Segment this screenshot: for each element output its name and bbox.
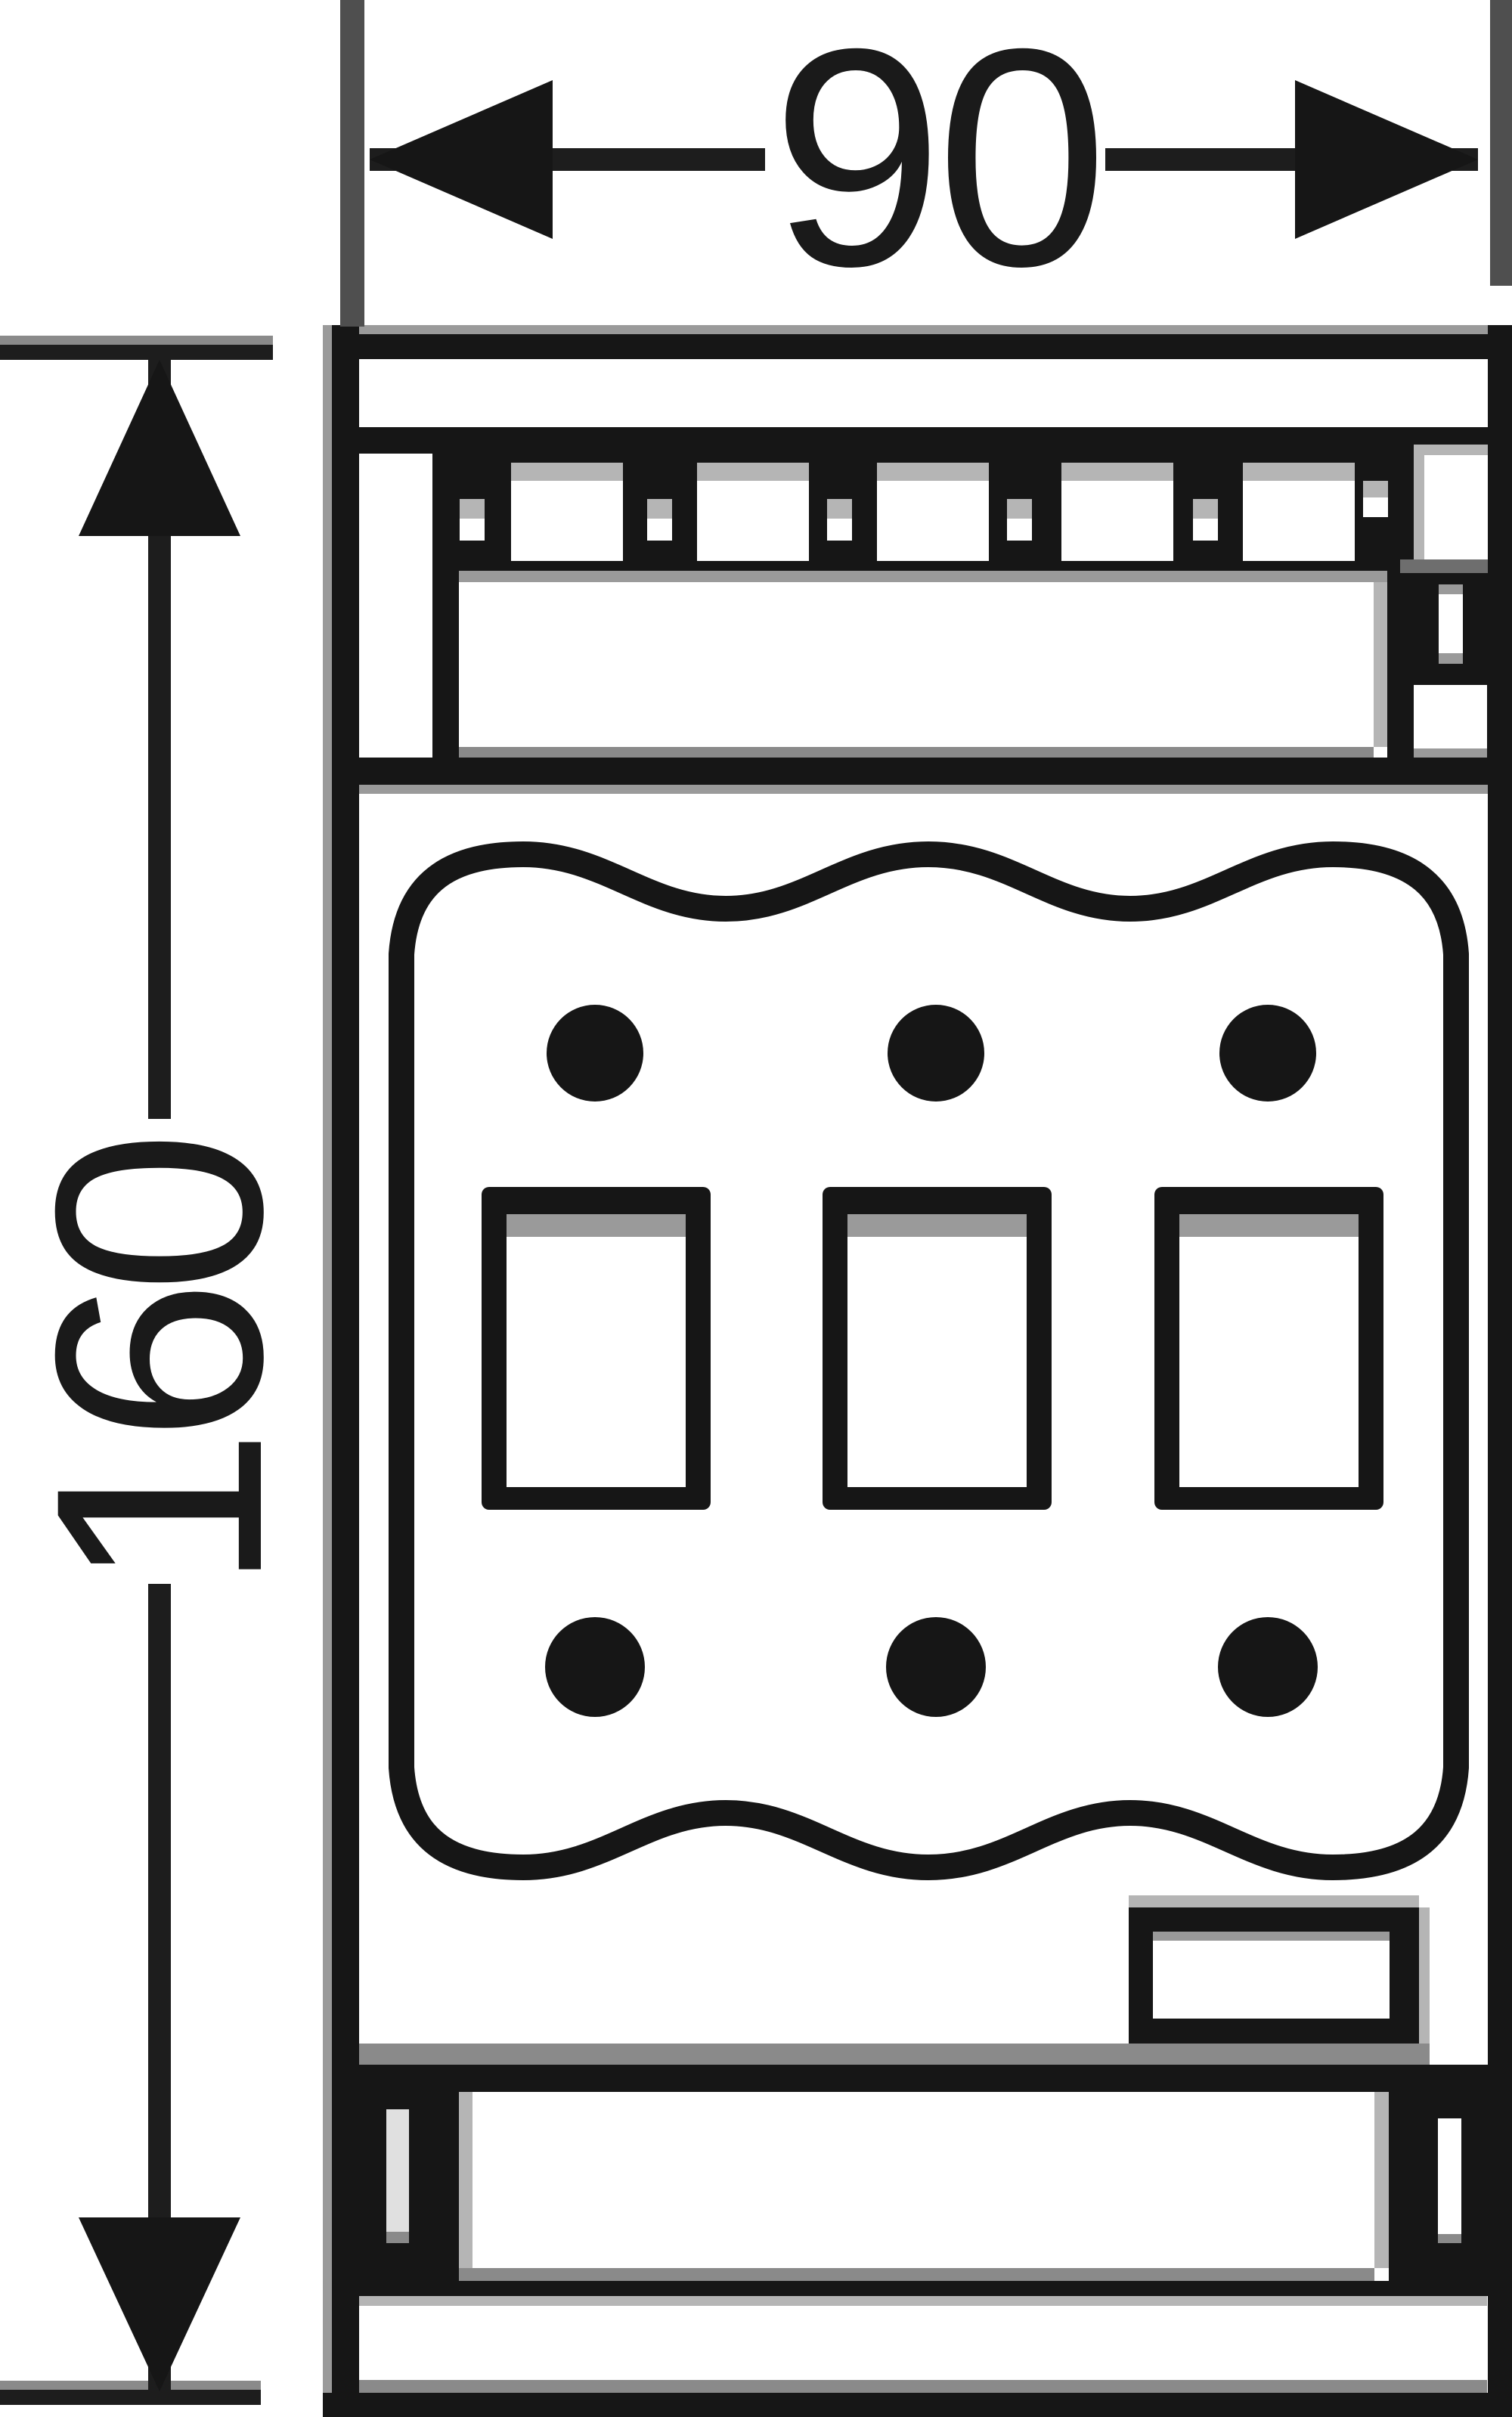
nameplate-shade — [1153, 1932, 1390, 1941]
left-side-strip — [359, 454, 432, 756]
rail-strip-bottom-edge — [359, 2380, 1487, 2393]
device-border-left-highlight — [323, 325, 332, 2417]
left-divider — [432, 427, 459, 794]
face-top-edge — [459, 571, 1387, 582]
section-divider-highlight — [359, 785, 1488, 794]
terminal-slit-shade — [1007, 499, 1032, 519]
terminal-slit-shade — [1193, 499, 1218, 519]
terminal-window-shade — [697, 463, 809, 481]
screw-point — [1218, 1617, 1318, 1717]
height-dimension: 160 — [0, 336, 324, 2405]
bottom-window-left-edge — [459, 2092, 472, 2268]
pole-window — [847, 1214, 1027, 1487]
extension-line-top — [0, 345, 273, 360]
clip-ledge — [1400, 559, 1488, 573]
clip-window-edge — [1414, 445, 1424, 559]
pole-windows — [482, 1187, 1383, 1510]
face-bottom-edge — [459, 747, 1374, 758]
terminal-window-shade — [877, 463, 989, 481]
top-terminal-section — [359, 359, 1488, 794]
bottom-left-slit — [386, 2109, 409, 2243]
extension-line-right — [1490, 0, 1512, 286]
extension-line-bottom-highlight — [0, 2381, 261, 2390]
terminal-slit-shade — [827, 499, 852, 519]
nameplate-right-edge — [1419, 1907, 1430, 2044]
pole-window — [1179, 1214, 1359, 1487]
width-dimension: 90 — [340, 0, 1512, 330]
nameplate-top-edge — [1129, 1895, 1419, 1907]
bottom-left-slit-cap — [386, 2232, 409, 2243]
pole-window-shade — [507, 1214, 686, 1237]
bottom-divider — [359, 2065, 1488, 2092]
nameplate-window — [1153, 1941, 1390, 2019]
section-divider — [359, 758, 1488, 785]
technical-drawing: 90 160 — [0, 0, 1512, 2417]
device-border-bottom — [323, 2393, 1512, 2417]
bottom-window — [459, 2092, 1374, 2268]
screw-point — [888, 1005, 984, 1102]
screw-point — [545, 1617, 645, 1717]
extension-line-bottom — [0, 2390, 261, 2405]
terminal-slit-shade — [460, 499, 485, 519]
figure-canvas: 90 160 — [0, 0, 1512, 2417]
clip-slot — [1439, 594, 1463, 653]
bottom-window-bottom-edge — [459, 2268, 1374, 2281]
bottom-window-underfill — [459, 2281, 1389, 2296]
terminal-window-shade — [1243, 463, 1355, 481]
extension-line-left — [340, 0, 364, 327]
top-inner-margin — [359, 359, 1488, 427]
width-dimension-label: 90 — [771, 0, 1101, 330]
pole-window-shade — [1179, 1214, 1359, 1237]
terminal-window-shade — [1061, 463, 1173, 481]
device-border-right — [1488, 325, 1512, 2417]
clip-window — [1414, 445, 1488, 559]
clip-window-top-edge — [1414, 445, 1488, 455]
dim-arrow-left — [370, 80, 553, 239]
screw-point — [1219, 1005, 1316, 1102]
bottom-divider-highlight — [359, 2044, 1430, 2065]
terminal-slit-shade — [647, 499, 672, 519]
screw-point — [886, 1617, 986, 1717]
clip-window-lower — [1414, 685, 1487, 748]
dim-arrow-up — [79, 360, 240, 536]
terminal-slit-shade — [1363, 481, 1388, 497]
pole-window — [507, 1214, 686, 1487]
height-dimension-label: 160 — [0, 1137, 324, 1591]
bottom-right-slit — [1438, 2118, 1461, 2243]
bottom-right-slit-cap — [1438, 2234, 1461, 2243]
middle-pole-section — [359, 794, 1488, 2044]
extension-line-top-highlight — [0, 336, 273, 345]
bottom-window-right-edge — [1374, 2092, 1389, 2268]
dim-arrow-down — [79, 2217, 240, 2391]
pole-window-shade — [847, 1214, 1027, 1237]
screw-point — [547, 1005, 643, 1102]
clip-window-lower-edge — [1414, 748, 1487, 758]
front-face — [459, 582, 1374, 747]
dim-arrow-right — [1295, 80, 1478, 239]
terminal-window-shade — [511, 463, 623, 481]
rail-strip-top-edge — [359, 2296, 1487, 2306]
rail-strip — [359, 2306, 1487, 2380]
clip-slot-cap — [1439, 653, 1463, 664]
face-right-edge — [1374, 582, 1387, 747]
clip-slot-cap — [1439, 584, 1463, 594]
